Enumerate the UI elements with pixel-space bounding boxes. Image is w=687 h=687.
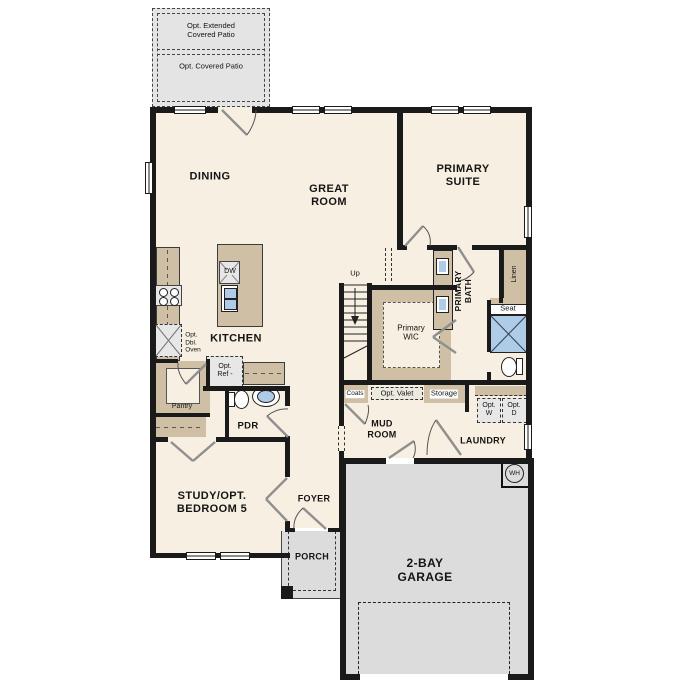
- laundry-label: LAUNDRY: [460, 436, 506, 447]
- porch-post: [281, 586, 293, 599]
- opt-ref-label: Opt. Ref -: [217, 363, 232, 380]
- wall-linen-west: [499, 245, 503, 303]
- opt-double-oven: [155, 324, 182, 357]
- window-dining-top: [174, 106, 206, 114]
- foyer-floor: [285, 440, 339, 528]
- shower: [490, 315, 527, 353]
- opt-dryer-label: Opt. D: [507, 402, 520, 419]
- wall-garage-bottom: [340, 674, 360, 680]
- vanity-sink: [436, 296, 449, 313]
- pdr-label: PDR: [238, 420, 259, 431]
- study-label: STUDY/OPT. BEDROOM 5: [177, 490, 247, 516]
- opt-extended-patio-label: Opt. Extended Covered Patio: [187, 22, 235, 40]
- window-dining-left: [145, 162, 153, 194]
- burner-icon: [170, 297, 179, 306]
- opt-valet-label: Opt. Valet: [381, 390, 414, 399]
- wall-ref-bottom: [203, 386, 290, 391]
- wall-wic-bottom: [339, 380, 530, 385]
- dining-label: DINING: [190, 171, 231, 184]
- wall-garage-top: [414, 458, 534, 464]
- wall-storage-east: [465, 380, 469, 412]
- wall-pdr-east: [285, 386, 290, 406]
- wall-bath-west: [487, 300, 491, 352]
- floor-plan: Opt. Extended Covered Patio Opt. Covered…: [0, 0, 687, 687]
- wall-garage-right: [528, 464, 534, 680]
- wall-garage-left: [340, 464, 346, 680]
- mud-room-label: MUD ROOM: [367, 418, 396, 439]
- wall-study-north: [150, 437, 168, 442]
- foyer-label: FOYER: [298, 494, 331, 505]
- garage-door-dashed-outline: [358, 602, 510, 674]
- garage-label: 2-BAY GARAGE: [397, 556, 452, 584]
- opt-dbl-oven-label: Opt. Dbl. Oven: [185, 332, 201, 355]
- primary-bath-label: PRIMARY BATH: [453, 271, 473, 312]
- window-suite-2: [463, 106, 491, 114]
- wall-stairs-left: [339, 283, 344, 384]
- cased-opening-mudroom: [338, 426, 345, 451]
- window-greatroom-2: [324, 106, 352, 114]
- sink-basin: [224, 288, 237, 299]
- opt-washer-label: Opt. W: [482, 402, 495, 419]
- wall-suite-south: [427, 245, 457, 250]
- pantry-shelves: [166, 368, 200, 404]
- counter-dash: [245, 373, 283, 374]
- wall-suite-south: [397, 245, 407, 250]
- great-room-label: GREAT ROOM: [309, 183, 349, 209]
- wall-hall-east-upper: [339, 384, 344, 426]
- wall-stairs-right: [367, 283, 372, 380]
- pdr-toilet-bowl: [234, 390, 249, 409]
- window-laundry-right: [524, 424, 532, 450]
- primary-wic-label: Primary WIC: [397, 324, 425, 343]
- seat-label: Seat: [500, 305, 515, 314]
- wall-pdr-west: [225, 389, 229, 438]
- primary-toilet-bowl: [501, 357, 517, 377]
- coats-label: Coats: [346, 390, 365, 398]
- pantry-label: Pantry: [172, 403, 192, 411]
- sink-basin: [224, 299, 237, 310]
- porch-label: PORCH: [295, 552, 329, 563]
- wall-study-east-upper: [285, 440, 290, 477]
- wall-wic-top: [367, 285, 457, 290]
- wall-suite-divider: [397, 113, 403, 245]
- window-suite-right: [524, 206, 532, 238]
- wall-pantry-bottom: [150, 413, 210, 417]
- laundry-shelf: [475, 386, 527, 396]
- burner-icon: [159, 288, 168, 297]
- pdr-sink-basin: [257, 390, 275, 403]
- door-gap-patio: [218, 107, 252, 113]
- window-suite-1: [431, 106, 459, 114]
- wall-study-north: [216, 437, 290, 442]
- wall-garage-top: [340, 458, 386, 464]
- wall-pantry-right: [206, 359, 210, 386]
- opt-covered-patio-label: Opt. Covered Patio: [179, 63, 243, 72]
- burner-icon: [170, 288, 179, 297]
- burner-icon: [159, 297, 168, 306]
- primary-toilet-tank: [516, 358, 523, 375]
- cased-opening-bedroom-hall: [385, 248, 392, 281]
- storage-label: Storage: [430, 390, 458, 399]
- wall-garage-bottom: [508, 674, 534, 680]
- window-greatroom-1: [292, 106, 320, 114]
- opt-patio-divider: [157, 49, 265, 55]
- kitchen-label: KITCHEN: [210, 333, 262, 346]
- vanity-sink: [436, 258, 449, 275]
- wall-foyer-south: [285, 528, 295, 532]
- stairs-up-label: Up: [350, 270, 360, 279]
- window-study-2: [220, 552, 250, 560]
- linen-label: Linen: [511, 265, 519, 282]
- window-study-1: [186, 552, 216, 560]
- dishwasher-label: DW: [224, 268, 236, 276]
- wall-pantry-top: [150, 359, 178, 363]
- wall-bath-west-stub: [487, 372, 491, 380]
- water-heater-label: WH: [509, 470, 520, 478]
- closet-rod-dash: [156, 427, 204, 428]
- wall-right-upper: [526, 107, 532, 464]
- primary-suite-label: PRIMARY SUITE: [436, 163, 489, 189]
